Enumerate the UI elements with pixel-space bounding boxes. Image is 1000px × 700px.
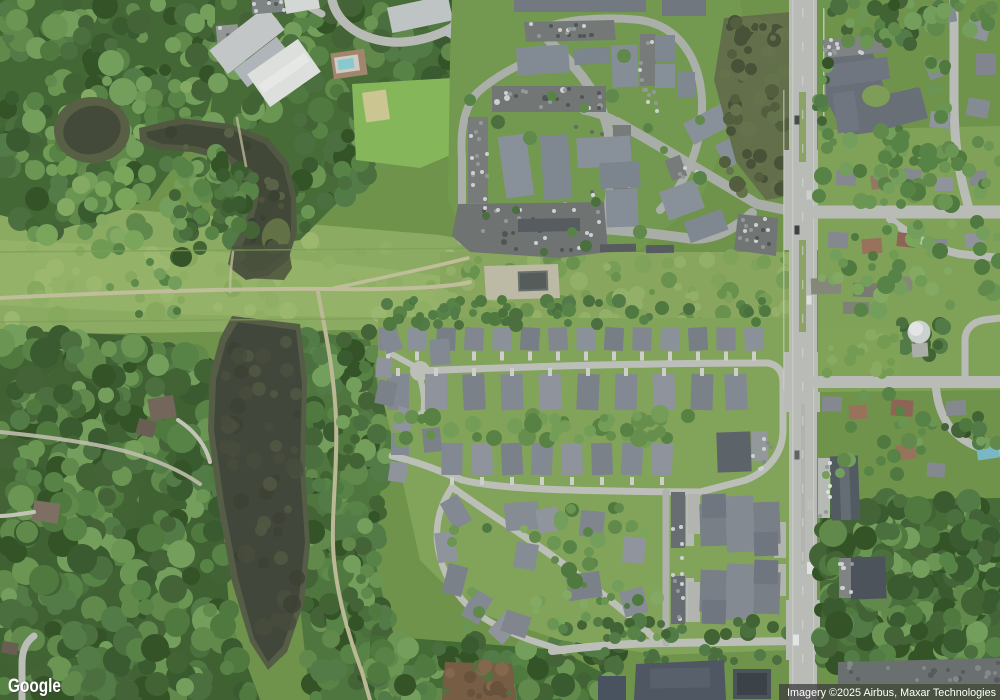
svg-text:Google: Google xyxy=(8,675,61,697)
svg-text:Imagery ©2025 Airbus, Maxar Te: Imagery ©2025 Airbus, Maxar Technologies xyxy=(787,687,996,699)
